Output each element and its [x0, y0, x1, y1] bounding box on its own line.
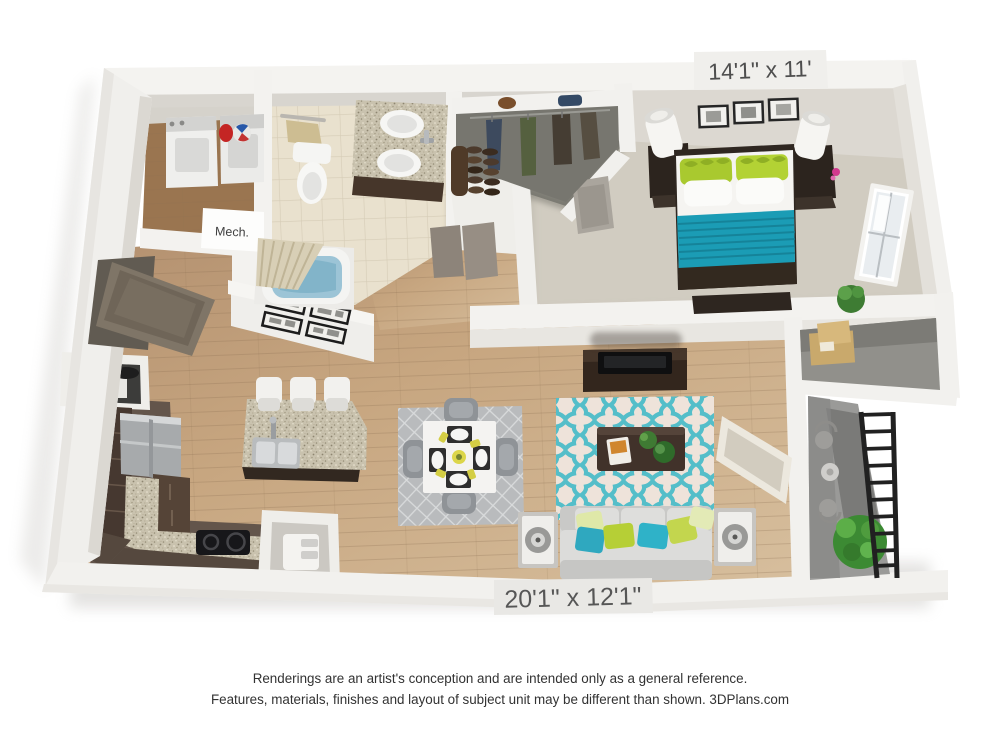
svg-text:Mech.: Mech.: [215, 224, 250, 239]
svg-text:14'1" x 11': 14'1" x 11': [708, 55, 812, 85]
svg-text:Features, materials, finishes: Features, materials, finishes and layout…: [211, 692, 789, 707]
svg-text:Renderings are an artist's con: Renderings are an artist's conception an…: [253, 671, 748, 686]
svg-text:20'1" x 12'1": 20'1" x 12'1": [504, 582, 642, 614]
